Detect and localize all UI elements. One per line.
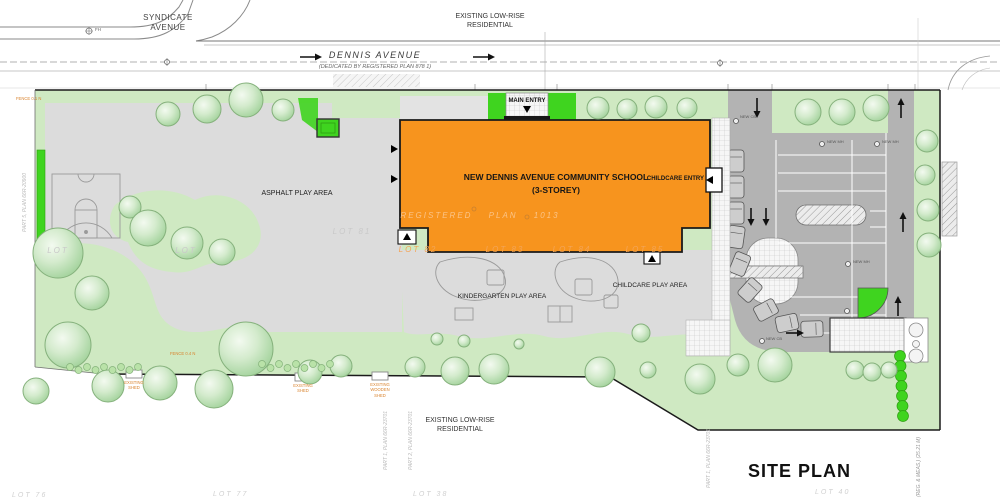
hatched-median <box>796 205 866 225</box>
tree-icon <box>640 362 656 378</box>
shrub-icon <box>92 367 99 374</box>
tree-icon <box>219 322 273 376</box>
lot-watermark-82: LOT 82 <box>399 245 438 255</box>
shrub-icon <box>897 391 908 402</box>
new-mh-label-1: NEW MH <box>827 139 844 144</box>
manhole-icon <box>734 119 739 124</box>
main-entry-label: MAIN ENTRY <box>508 98 545 106</box>
parked-car-icon <box>728 150 744 172</box>
manhole-icon <box>820 142 825 147</box>
shrub-icon <box>259 361 266 368</box>
south-residential-label: EXISTING LOW-RISE RESIDENTIAL <box>425 417 494 435</box>
fence-annotation-2: FENCE 0.4 N <box>170 351 195 356</box>
tree-icon <box>587 97 609 119</box>
tree-icon <box>917 233 941 257</box>
fence-annotation-1: FENCE 0.1 N <box>16 96 41 101</box>
manhole-icon <box>875 142 880 147</box>
east-context <box>942 56 990 236</box>
tree-icon <box>863 363 881 381</box>
tree-icon <box>45 322 91 368</box>
street-label-syndicate: SYNDICATE AVENUE <box>143 13 193 33</box>
manhole-icon <box>846 262 851 267</box>
tree-icon <box>514 339 524 349</box>
childcare-entry-label: CHILDCARE ENTRY <box>647 176 704 184</box>
site-plan-page: SYNDICATE AVENUE DENNIS AVENUE (DEDICATE… <box>0 0 1000 500</box>
new-cb-label-2: NEW CB <box>740 114 756 119</box>
childcare-play-label: CHILDCARE PLAY AREA <box>613 282 688 290</box>
tree-icon <box>585 357 615 387</box>
shrub-icon <box>267 365 274 372</box>
tree-icon <box>405 357 425 377</box>
shrub-icon <box>898 411 909 422</box>
tree-icon <box>75 276 109 310</box>
shrub-icon <box>310 361 317 368</box>
tree-icon <box>479 354 509 384</box>
tree-icon <box>917 199 939 221</box>
lot-watermark-85: LOT 85 <box>626 245 665 255</box>
tree-icon <box>156 102 180 126</box>
shrub-icon <box>135 364 142 371</box>
shrub-icon <box>895 351 906 362</box>
tree-icon <box>677 98 697 118</box>
new-mh-label-2: NEW MH <box>882 139 899 144</box>
drawing-title: SITE PLAN <box>748 460 851 483</box>
tree-icon <box>195 370 233 408</box>
lot-watermark-81: LOT 81 <box>333 227 372 237</box>
new-cb-label-1: NEW CB <box>766 336 782 341</box>
tree-icon <box>617 99 637 119</box>
shrub-icon <box>126 367 133 374</box>
lot-watermark-77: LOT 77 <box>213 491 248 500</box>
manhole-icon <box>845 309 850 314</box>
survey-note-reg-meas: (REG. & MEAS.) (25.21 M) <box>916 437 922 497</box>
tree-icon <box>330 355 352 377</box>
tree-icon <box>92 370 124 402</box>
new-mh-label-3: NEW MH <box>853 259 870 264</box>
lot-watermark-38: LOT 38 <box>413 491 448 500</box>
tree-icon <box>23 378 49 404</box>
shrub-icon <box>896 381 907 392</box>
shrub-icon <box>101 364 108 371</box>
tree-icon <box>846 361 864 379</box>
registered-plan-watermark: REGISTERED PLAN 1013 <box>400 211 559 221</box>
tree-icon <box>632 324 650 342</box>
mini-court <box>317 119 339 137</box>
lot-watermark-76: LOT 76 <box>12 492 47 500</box>
shed-annotation-1: EXISTING SHED <box>293 383 313 394</box>
tree-icon <box>431 333 443 345</box>
shrub-icon <box>84 364 91 371</box>
street-label-dennis: DENNIS AVENUE <box>329 50 421 61</box>
hydrant-label: FH <box>95 27 101 33</box>
existing-building-hatch <box>942 162 957 236</box>
shrub-icon <box>118 364 125 371</box>
parked-car-icon <box>801 321 824 338</box>
tree-icon <box>458 335 470 347</box>
tree-icon <box>881 362 897 378</box>
lot-watermark-84: LOT 84 <box>553 245 592 255</box>
shed-annotation-3: EXISTING SHED <box>124 380 144 391</box>
tree-icon <box>209 239 235 265</box>
shrub-icon <box>293 361 300 368</box>
lot-watermark-80: LOT <box>175 246 197 256</box>
tree-icon <box>272 99 294 121</box>
tree-icon <box>441 357 469 385</box>
shrub-icon <box>67 364 74 371</box>
shrub-icon <box>327 361 334 368</box>
lot-watermark-79: LOT <box>47 246 69 256</box>
hedge-strip <box>37 150 45 242</box>
lot-watermark-83: LOT 83 <box>486 245 525 255</box>
tree-icon <box>916 130 938 152</box>
tree-icon <box>795 99 821 125</box>
survey-note-part1b: PART 1, PLAN 66R-23701 <box>706 429 712 488</box>
traffic-arrow-icon <box>315 54 322 61</box>
shrub-icon <box>284 365 291 372</box>
seating-pad <box>904 318 928 363</box>
shrub-icon <box>897 401 908 412</box>
paver-pad <box>830 318 906 352</box>
survey-note-part1: PART 1, PLAN 66R-23701 <box>383 411 389 470</box>
shrub-icon <box>276 361 283 368</box>
tree-icon <box>727 354 749 376</box>
tree-icon <box>130 210 166 246</box>
fire-hydrant-icon <box>85 27 93 35</box>
asphalt-play-label: ASPHALT PLAY AREA <box>261 190 332 199</box>
tree-icon <box>829 99 855 125</box>
tree-icon <box>229 83 263 117</box>
shrub-icon <box>318 365 325 372</box>
survey-note-part2: PART 2, PLAN 66R-23701 <box>408 411 414 470</box>
kindergarten-play-label: KINDERGARTEN PLAY AREA <box>458 293 547 301</box>
parked-car-icon <box>728 176 744 198</box>
tree-icon <box>685 364 715 394</box>
north-residential-label: EXISTING LOW-RISE RESIDENTIAL <box>455 13 524 31</box>
tree-icon <box>758 348 792 382</box>
traffic-arrow-icon <box>488 54 495 61</box>
shrub-icon <box>75 367 82 374</box>
dennis-dedication-note: (DEDICATED BY REGISTERED PLAN 878 1) <box>319 64 431 71</box>
lot-watermark-40: LOT 40 <box>815 489 850 498</box>
shrub-icon <box>301 365 308 372</box>
shrub-icon <box>109 367 116 374</box>
parked-car-icon <box>728 202 744 224</box>
driveway-hatch <box>333 74 420 87</box>
tree-icon <box>193 95 221 123</box>
building-name-label: NEW DENNIS AVENUE COMMUNITY SCHOOL (3-ST… <box>464 171 649 197</box>
survey-note-part5: PART 5, PLAN 66R-20900 <box>22 173 28 232</box>
manhole-icon <box>760 339 765 344</box>
shed-annotation-2: EXISTING WOODEN SHED <box>370 382 390 398</box>
tree-icon <box>143 366 177 400</box>
tree-icon <box>915 165 935 185</box>
tree-icon <box>645 96 667 118</box>
tree-icon <box>863 95 889 121</box>
